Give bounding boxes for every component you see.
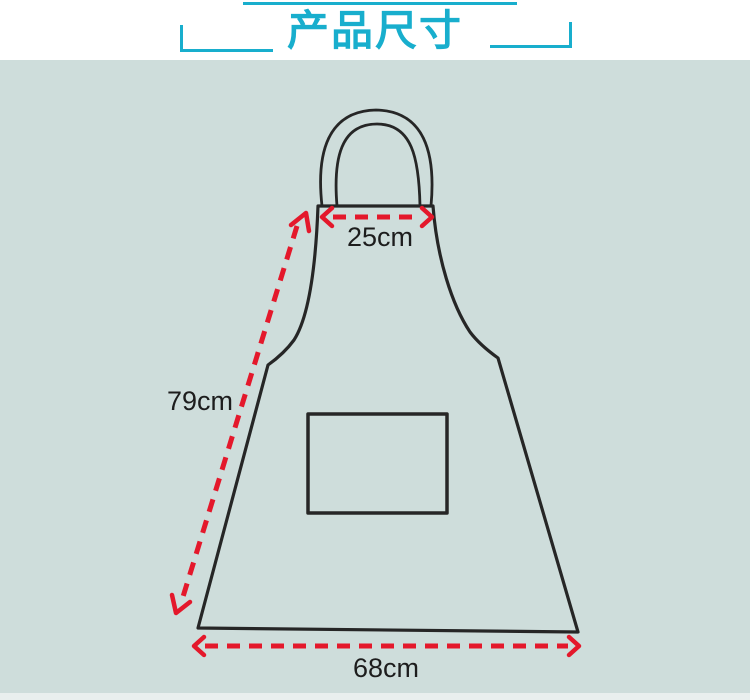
product-dimensions-page: 产品尺寸 (0, 0, 750, 700)
apron-body-outline (198, 206, 578, 632)
dim-label-top-width: 25cm (347, 222, 413, 252)
dim-label-side-length: 79cm (167, 386, 233, 416)
neck-strap-inner (336, 124, 420, 206)
apron-dimension-diagram: 25cm 79cm 68cm (0, 0, 750, 700)
dim-label-bottom-width: 68cm (353, 653, 419, 683)
pocket-rect (308, 414, 447, 513)
